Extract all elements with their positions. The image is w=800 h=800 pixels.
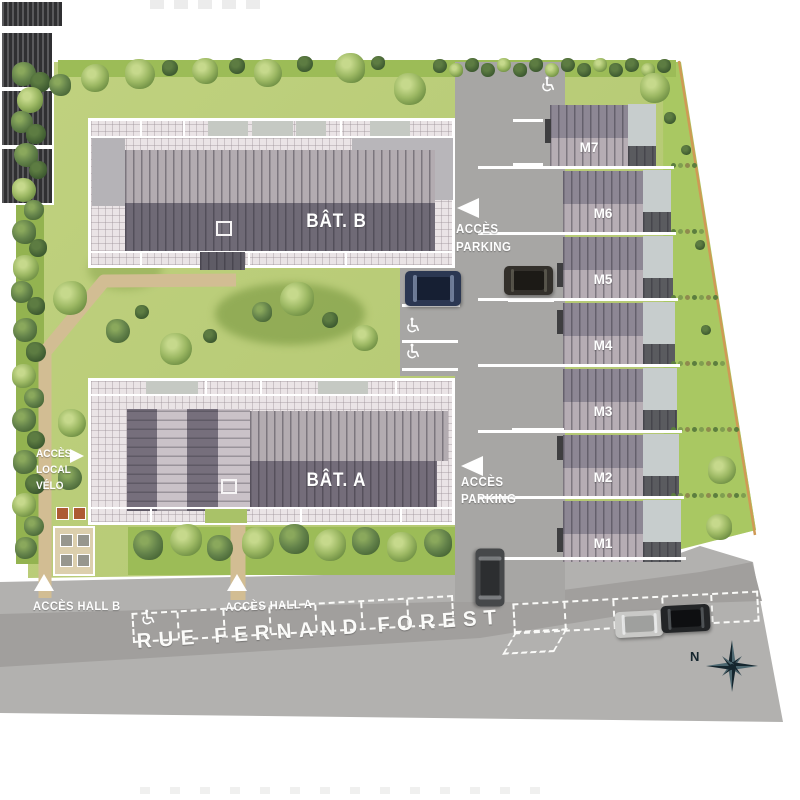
wheelchair-icon bbox=[406, 343, 420, 359]
compass-rose-icon bbox=[704, 638, 760, 694]
icons-layer bbox=[0, 0, 800, 800]
wheelchair-icon bbox=[541, 76, 555, 92]
page-artifact bbox=[150, 0, 260, 9]
page-artifact bbox=[140, 787, 560, 794]
wheelchair-icon bbox=[406, 317, 420, 333]
wheelchair-icon bbox=[141, 609, 156, 626]
site-plan: BÂT. B BÂT. A M7 M6 M5 bbox=[0, 0, 800, 800]
